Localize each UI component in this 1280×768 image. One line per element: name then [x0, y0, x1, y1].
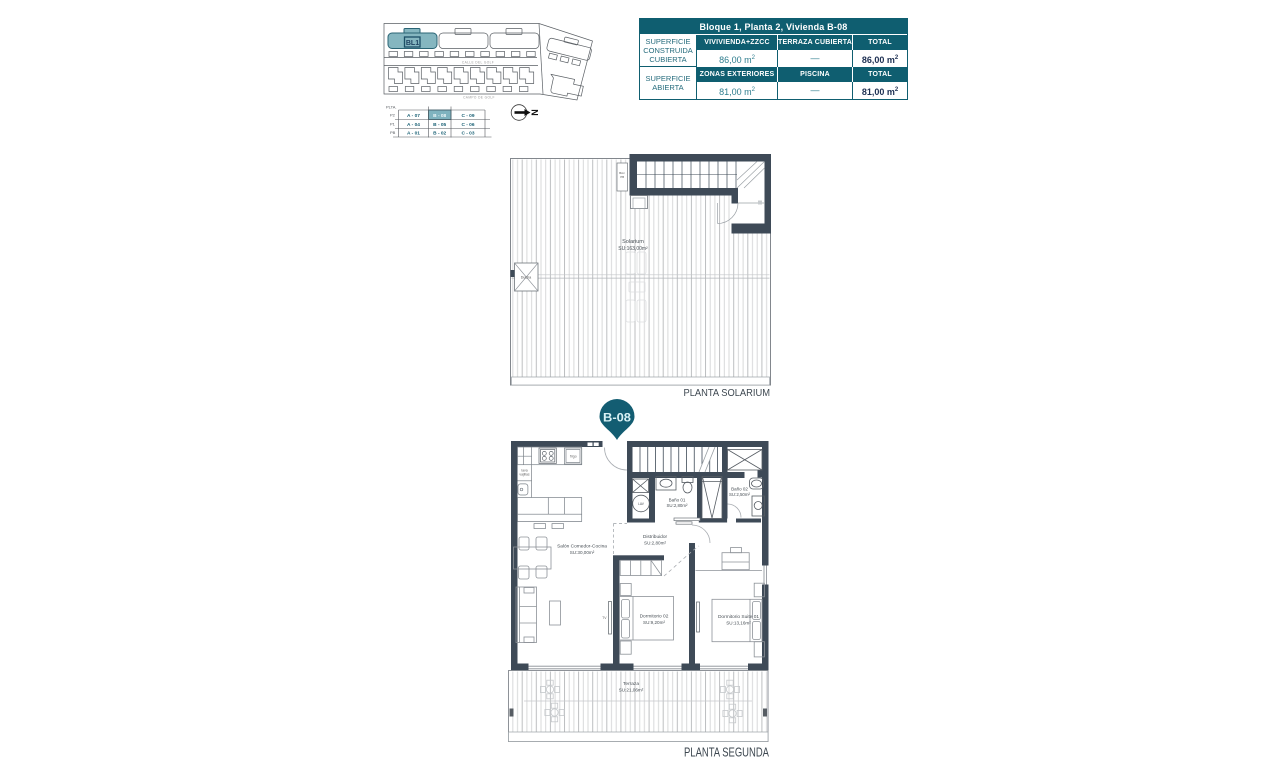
- svg-text:B - 02: B - 02: [433, 131, 446, 137]
- svg-text:C - 06: C - 06: [461, 122, 474, 128]
- svg-text:BL1: BL1: [406, 40, 419, 47]
- svg-text:PB: PB: [390, 130, 396, 135]
- svg-text:SU:2,80m²: SU:2,80m²: [644, 541, 666, 546]
- svg-text:B - 05: B - 05: [433, 122, 446, 128]
- svg-text:Salón Comedor-Cocina: Salón Comedor-Cocina: [557, 544, 607, 550]
- svg-text:A - 04: A - 04: [407, 122, 420, 128]
- svg-text:CALLE DEL GOLF: CALLE DEL GOLF: [462, 61, 494, 65]
- svg-text:PLANTA SOLARIUM: PLANTA SOLARIUM: [684, 388, 771, 399]
- svg-text:SU:30,00m²: SU:30,00m²: [570, 550, 595, 555]
- svg-text:vajillas: vajillas: [519, 473, 529, 477]
- svg-text:C - 09: C - 09: [461, 113, 474, 119]
- svg-text:P1: P1: [390, 122, 396, 127]
- svg-text:SU:2,50m²: SU:2,50m²: [729, 492, 751, 497]
- svg-text:Terraza: Terraza: [623, 681, 639, 687]
- svg-text:N: N: [530, 109, 540, 116]
- svg-text:PB: PB: [620, 175, 624, 179]
- svg-text:SU:2,80m²: SU:2,80m²: [667, 503, 689, 508]
- svg-text:Baño 02: Baño 02: [731, 487, 748, 492]
- svg-text:PLTA.: PLTA.: [386, 105, 397, 110]
- svg-text:Baño 01: Baño 01: [669, 498, 686, 503]
- svg-text:P2: P2: [390, 113, 396, 118]
- svg-text:Solarium: Solarium: [622, 239, 644, 245]
- svg-text:Ducha: Ducha: [521, 276, 531, 280]
- svg-text:A - 01: A - 01: [407, 131, 420, 137]
- svg-text:Distribuidor: Distribuidor: [643, 534, 668, 540]
- svg-text:CAMPO DE GOLF: CAMPO DE GOLF: [463, 96, 495, 100]
- svg-text:SU:13,16m²: SU:13,16m²: [726, 621, 751, 626]
- svg-text:LAV: LAV: [638, 502, 645, 506]
- svg-text:Dormitorio Suite 01: Dormitorio Suite 01: [718, 614, 759, 620]
- svg-text:SU:163,00m²: SU:163,00m²: [618, 246, 648, 252]
- svg-text:A - 07: A - 07: [407, 113, 420, 119]
- svg-text:Dormitorio 02: Dormitorio 02: [640, 614, 669, 620]
- svg-text:TV: TV: [602, 616, 607, 620]
- svg-text:B-08: B-08: [603, 413, 632, 425]
- svg-text:SU:9,20m²: SU:9,20m²: [643, 620, 665, 625]
- svg-text:frigo: frigo: [570, 455, 577, 459]
- svg-text:B - 08: B - 08: [433, 113, 446, 119]
- svg-text:PLANTA SEGUNDA: PLANTA SEGUNDA: [684, 746, 769, 760]
- svg-text:C - 03: C - 03: [461, 131, 474, 137]
- svg-text:SU:21,06m²: SU:21,06m²: [619, 688, 644, 693]
